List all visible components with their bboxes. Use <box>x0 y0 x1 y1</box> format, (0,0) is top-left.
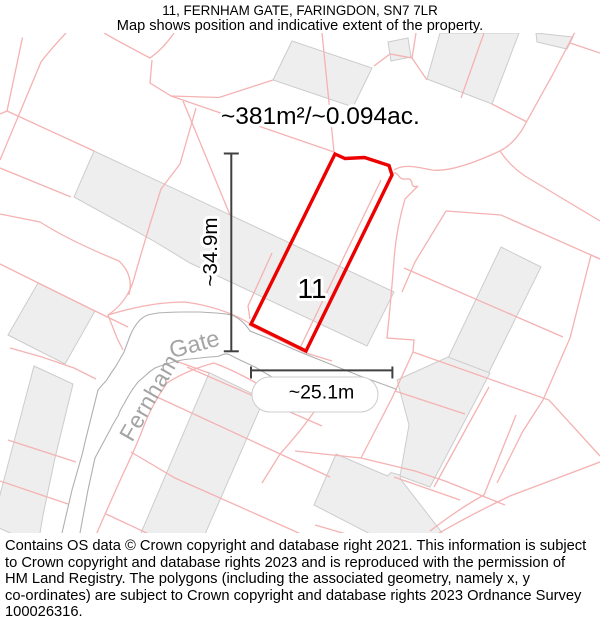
svg-text:11: 11 <box>297 273 326 304</box>
svg-text:~34.9m: ~34.9m <box>199 218 222 287</box>
svg-text:~25.1m: ~25.1m <box>289 382 355 404</box>
svg-text:~381m²/~0.094ac.: ~381m²/~0.094ac. <box>221 103 420 130</box>
